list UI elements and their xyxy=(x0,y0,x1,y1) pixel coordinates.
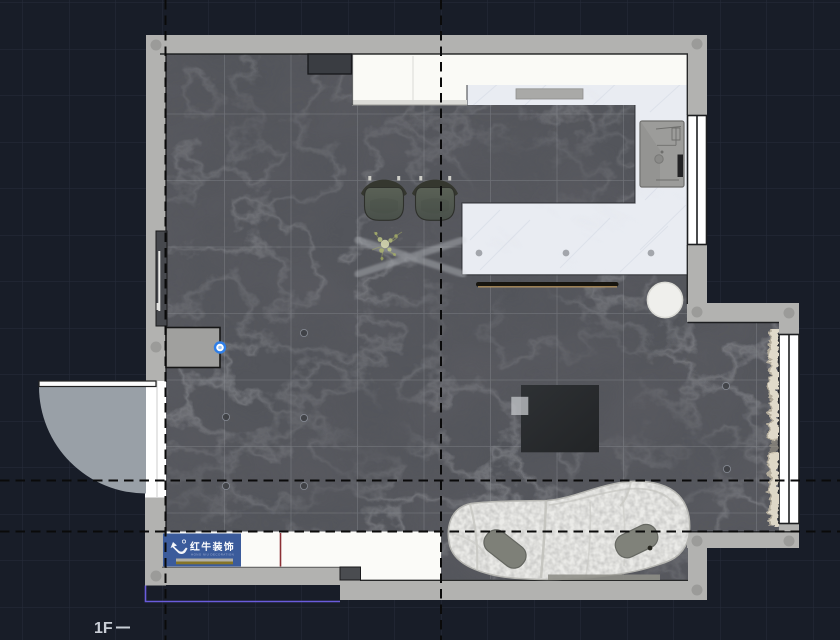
svg-text:红牛装饰: 红牛装饰 xyxy=(190,540,235,553)
svg-text:1F: 1F xyxy=(94,620,113,637)
svg-text:HONG NIU DECORATION: HONG NIU DECORATION xyxy=(191,553,234,557)
